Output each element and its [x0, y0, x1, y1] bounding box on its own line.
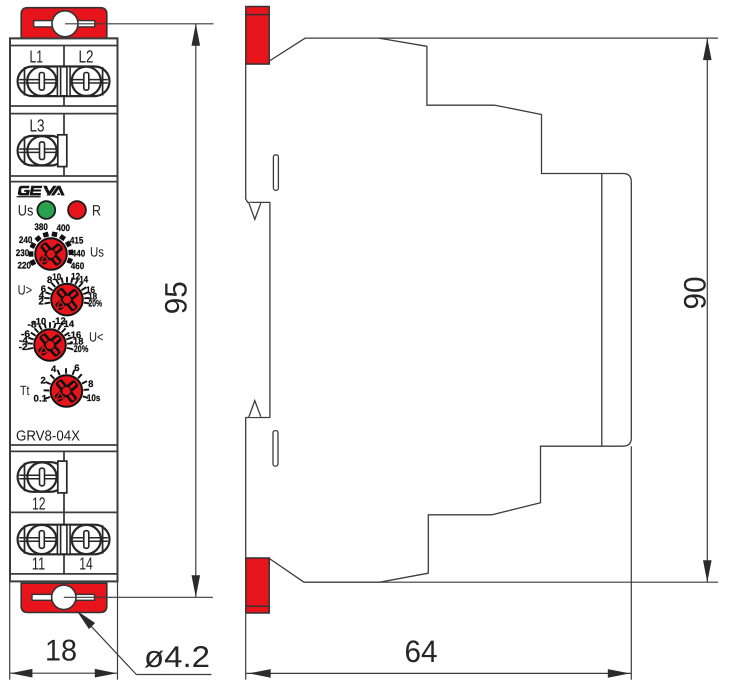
svg-text:11: 11: [32, 554, 46, 574]
svg-text:14: 14: [79, 554, 93, 574]
svg-text:18: 18: [45, 635, 77, 668]
svg-text:10: 10: [52, 272, 61, 283]
svg-text:L3: L3: [30, 116, 45, 136]
svg-text:ø4.2: ø4.2: [144, 641, 210, 674]
svg-text:U<: U<: [89, 329, 104, 344]
svg-text:Us: Us: [90, 245, 104, 260]
svg-text:R: R: [92, 203, 101, 220]
svg-text:8: 8: [88, 379, 93, 390]
svg-text:10s: 10s: [87, 393, 101, 404]
svg-text:-14: -14: [61, 319, 75, 330]
svg-text:GRV8-04X: GRV8-04X: [16, 428, 80, 444]
svg-text:2: 2: [41, 376, 46, 387]
svg-text:6: 6: [74, 363, 79, 374]
svg-text:Tt: Tt: [20, 383, 30, 398]
svg-text:90: 90: [677, 277, 712, 310]
svg-text:6: 6: [41, 284, 46, 295]
svg-text:12: 12: [32, 493, 46, 513]
svg-text:-10: -10: [33, 317, 47, 328]
svg-text:20%: 20%: [89, 298, 103, 309]
svg-text:240: 240: [19, 235, 33, 246]
svg-text:L2: L2: [79, 46, 94, 66]
svg-text:14: 14: [79, 274, 89, 285]
svg-text:4: 4: [51, 364, 57, 375]
svg-text:220: 220: [18, 261, 32, 272]
svg-text:Us: Us: [18, 202, 34, 219]
svg-text:L1: L1: [30, 46, 44, 66]
svg-text:400: 400: [57, 223, 71, 234]
svg-text:0.1: 0.1: [34, 393, 48, 404]
svg-text:-6: -6: [21, 329, 30, 340]
svg-text:95: 95: [159, 281, 194, 314]
svg-text:440: 440: [72, 248, 86, 259]
svg-text:230: 230: [16, 248, 30, 259]
svg-text:380: 380: [34, 222, 48, 233]
svg-text:U>: U>: [18, 282, 33, 297]
svg-text:64: 64: [405, 634, 438, 669]
svg-text:415: 415: [70, 236, 84, 247]
svg-text:-20%: -20%: [71, 344, 88, 355]
